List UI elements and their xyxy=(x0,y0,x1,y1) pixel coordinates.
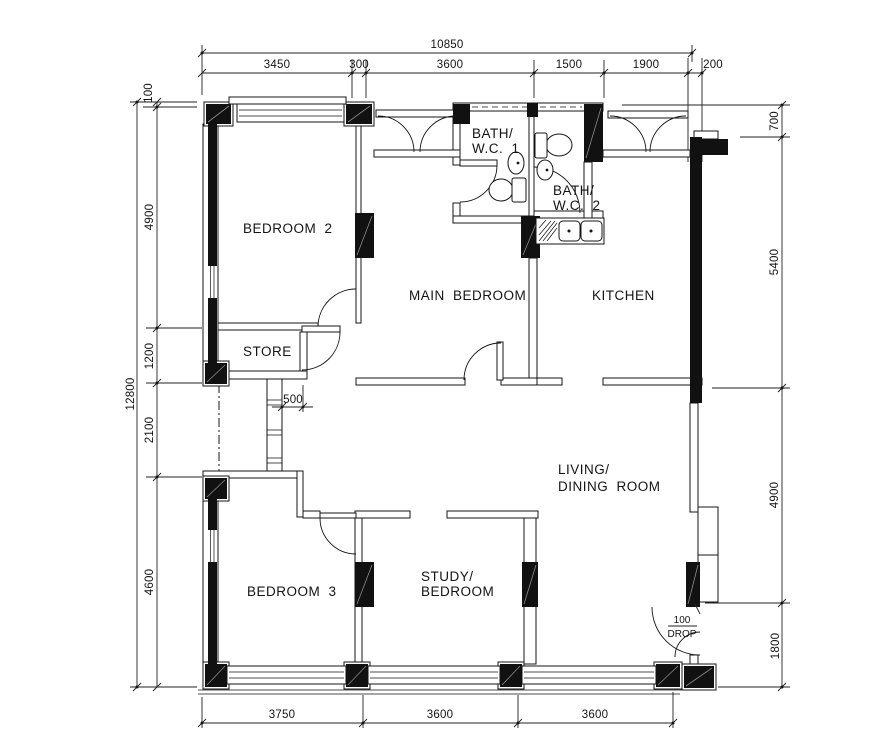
floorplan-drawing: 10850 3450 300 3600 1500 1900 200 12800 … xyxy=(0,0,895,745)
mainbedroom-bottom-wall-left xyxy=(356,378,465,385)
room-label-study-line1: STUDY/ xyxy=(421,569,474,584)
bay-window-lower xyxy=(698,555,718,602)
bottom-window-2 xyxy=(368,666,500,684)
dim-top-seg-5: 200 xyxy=(703,59,723,71)
mainbedroom-door-swing xyxy=(464,343,501,380)
bottom-window-1 xyxy=(227,666,346,684)
floorplan-page: 10850 3450 300 3600 1500 1900 200 12800 … xyxy=(0,0,895,745)
bedroom2-top-window-sill xyxy=(229,97,346,104)
bedroom2-door-swing xyxy=(318,289,356,327)
dim-right-seg-0: 700 xyxy=(769,111,781,131)
room-label-bath1-line2: W.C. 1 xyxy=(472,141,520,156)
dim-left-seg-3: 2100 xyxy=(144,417,156,443)
kitchen-top-wall xyxy=(603,150,690,157)
mainbedroom-balcony-door-left xyxy=(378,116,414,152)
store-door-swing xyxy=(302,332,340,370)
dim-right-seg-1: 5400 xyxy=(769,249,781,275)
left-extension-lines xyxy=(130,102,202,687)
dim-bottom-seg-0: 3750 xyxy=(269,709,295,721)
dim-bottom-seg-1: 3600 xyxy=(427,709,453,721)
left-dimensions: 12800 100 4900 1200 2100 4600 xyxy=(125,83,202,691)
bath-divider-wall xyxy=(529,111,534,216)
bedroom3-door-leaf xyxy=(320,513,356,518)
bedroom3-left-wall-black-upper xyxy=(208,499,217,530)
mainbedroom-kitchen-wall xyxy=(529,258,537,378)
basin-2 xyxy=(537,160,553,180)
dim-right-seg-3: 1800 xyxy=(770,633,782,659)
room-label-bath2-line1: BATH/ xyxy=(553,183,594,198)
room-label-living-line2: DINING ROOM xyxy=(558,479,661,494)
mainbedroom-bottom-wall-right xyxy=(501,378,540,385)
bath-divider-stub xyxy=(527,103,538,117)
kitchen-right-wall-black xyxy=(690,137,702,403)
dim-bottom-seg-2: 3600 xyxy=(582,709,608,721)
bedroom2-left-wall-black-upper xyxy=(208,124,217,266)
drop-value-label: 100 xyxy=(674,615,691,626)
kitchen-bottom-wall-left xyxy=(537,378,562,385)
room-label-kitchen: KITCHEN xyxy=(592,288,655,303)
bottom-sill-lines xyxy=(198,690,714,694)
bottom-dimensions: 3750 3600 3600 xyxy=(198,692,677,728)
bath1-bottom-wall xyxy=(453,216,529,223)
mainbedroom-door-leaf xyxy=(497,342,503,380)
study-top-wall-right xyxy=(447,511,538,518)
bedroom3-door-swing xyxy=(320,518,356,554)
dim-top-seg-4: 1900 xyxy=(633,59,659,71)
toilet-tank-2 xyxy=(535,133,547,158)
bedroom2-left-wall-black-lower xyxy=(208,298,217,363)
walls xyxy=(198,103,718,694)
bath1-corner-black xyxy=(453,104,470,124)
room-label-living-line1: LIVING/ xyxy=(558,462,610,477)
dim-left-seg-0: 100 xyxy=(143,83,155,103)
room-label-bath2-line2: W.C. 2 xyxy=(553,198,601,213)
room-label-store: STORE xyxy=(243,344,292,359)
store-door-leaf xyxy=(302,326,340,332)
bottom-window-3 xyxy=(522,666,656,684)
bedroom2-top-window xyxy=(237,104,344,122)
toilet-tank-1 xyxy=(512,178,526,202)
dim-top-seg-1: 300 xyxy=(349,59,369,71)
dim-top-seg-0: 3450 xyxy=(264,59,290,71)
toilet-bowl-1 xyxy=(489,179,513,201)
room-label-bedroom3: BEDROOM 3 xyxy=(247,584,337,599)
living-right-wall xyxy=(690,403,698,512)
corridor-duct-wall xyxy=(267,379,282,477)
dim-corridor-width: 500 xyxy=(283,394,303,406)
dim-top-seg-3: 1500 xyxy=(556,59,582,71)
bedroom3-left-wall-black-lower xyxy=(208,562,217,664)
store-right-wall xyxy=(300,332,307,371)
room-label-bath1-line1: BATH/ xyxy=(472,126,513,141)
dim-top-total: 10850 xyxy=(431,39,464,51)
room-label-bedroom2: BEDROOM 2 xyxy=(243,221,333,236)
drop-word-label: DROP xyxy=(668,629,697,640)
dim-left-seg-4: 4600 xyxy=(144,569,156,595)
bay-window-upper xyxy=(698,507,718,555)
room-label-study-line2: BEDROOM xyxy=(421,584,494,599)
study-top-wall-left xyxy=(355,511,410,518)
bedroom3-door-jamb xyxy=(303,511,320,518)
dim-top-seg-2: 3600 xyxy=(437,59,463,71)
room-label-main-bedroom: MAIN BEDROOM xyxy=(409,288,526,303)
mainbedroom-top-wall xyxy=(374,150,460,157)
toilet-bowl-2 xyxy=(546,134,572,156)
mainbedroom-top-sill xyxy=(376,110,458,117)
dim-left-seg-1: 4900 xyxy=(144,204,156,230)
entrance-drop-note: 100 DROP xyxy=(668,604,700,640)
service-door-left xyxy=(610,116,646,152)
dim-left-seg-2: 1200 xyxy=(144,343,156,369)
bedroom3-step-wall xyxy=(297,471,303,517)
mainbedroom-balcony-door-right xyxy=(420,116,456,152)
bath1-door-leaf xyxy=(460,160,497,166)
service-door-right xyxy=(650,116,686,152)
kitchen-corner-stub xyxy=(690,139,728,155)
kitchen-bottom-wall-right xyxy=(603,378,702,385)
dim-right-seg-2: 4900 xyxy=(769,482,781,508)
dim-left-total: 12800 xyxy=(125,378,137,411)
